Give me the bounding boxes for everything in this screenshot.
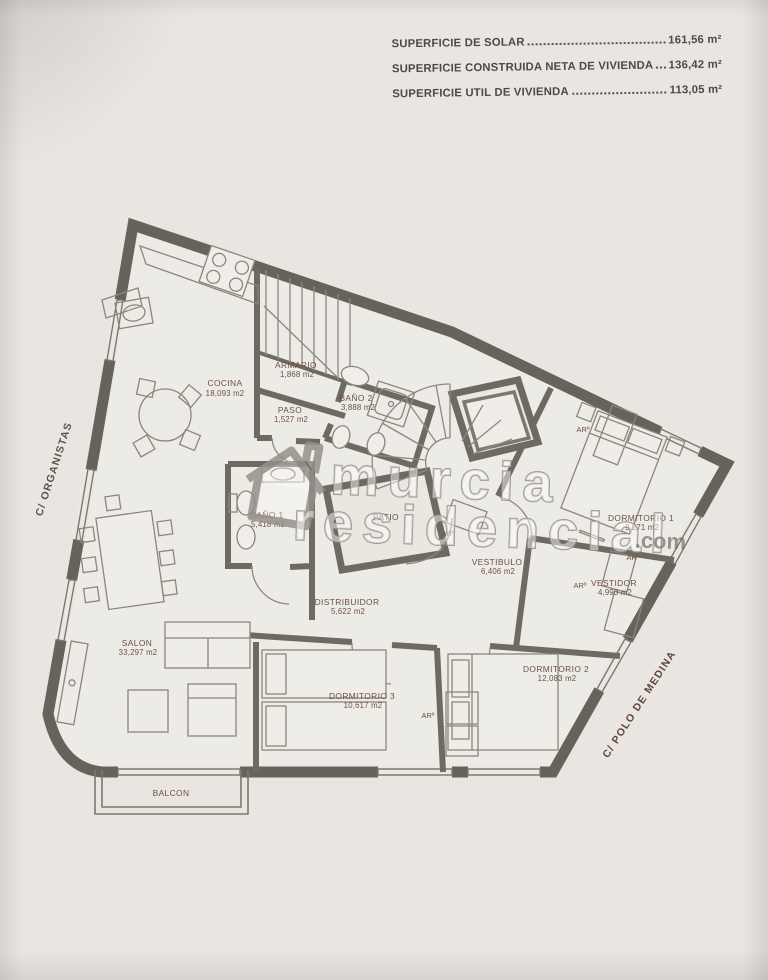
room-area: 33,297 m2 <box>119 648 158 657</box>
room-name: DISTRIBUIDOR <box>315 597 380 607</box>
room-name: SALON <box>122 638 152 648</box>
floor-plan-svg: COCINA 18,093 m2 ARMARIO 1,868 m2 PASO 1… <box>0 0 768 980</box>
watermark-suffix: .com <box>634 527 686 554</box>
room-label-salon: SALON 33,297 m2 <box>119 638 158 657</box>
room-name: COCINA <box>208 378 243 388</box>
room-area: 6,406 m2 <box>481 567 515 576</box>
room-area: 1,868 m2 <box>280 370 314 379</box>
room-name: ARMARIO <box>275 360 317 370</box>
room-area: 18,093 m2 <box>206 389 245 398</box>
room-area: 10,617 m2 <box>344 701 383 710</box>
room-name: DORMITORIO 3 <box>329 691 395 701</box>
room-area: 4,993 m2 <box>598 588 632 597</box>
street-label-left: C/ ORGANISTAS <box>33 420 75 517</box>
room-area: 12,083 m2 <box>538 674 577 683</box>
room-label-bano2: BAÑO 2 3,888 m2 <box>339 393 375 412</box>
room-name: BALCON <box>153 788 190 798</box>
room-name: VESTIDOR <box>591 578 637 588</box>
floor-plan-photo: SUPERFICIE DE SOLAR 161,56 m² SUPERFICIE… <box>0 0 768 980</box>
elevator <box>452 380 538 458</box>
room-label-balcon: BALCON <box>153 788 190 798</box>
closet-label: ARº <box>577 425 590 434</box>
room-label-armario: ARMARIO 1,868 m2 <box>275 360 317 379</box>
room-label-vestidor: VESTIDOR 4,993 m2 <box>591 578 637 597</box>
room-name: BAÑO 2 <box>339 393 372 403</box>
room-name: PASO <box>278 405 302 415</box>
room-area: 3,888 m2 <box>341 403 375 412</box>
closet-label: ARº <box>574 581 587 590</box>
room-area: 5,622 m2 <box>331 607 365 616</box>
room-area: 1,527 m2 <box>274 415 308 424</box>
room-name: DORMITORIO 2 <box>523 664 589 674</box>
closet-label: ARº <box>422 711 435 720</box>
